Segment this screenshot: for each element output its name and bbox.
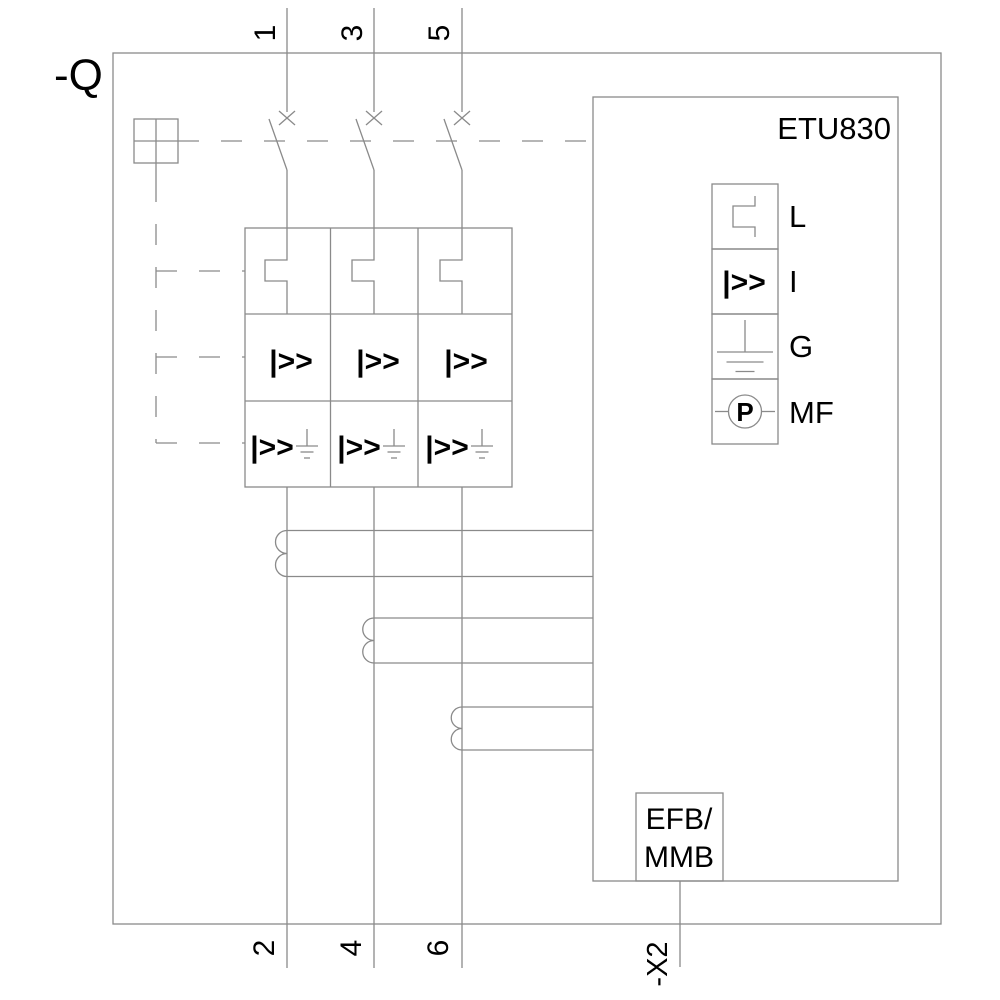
metering-function-icon: P (715, 395, 775, 428)
ground-fault-release-symbol: |>> (337, 431, 380, 464)
ground-fault-release-symbol: |>> (425, 431, 468, 464)
efb-mmb-box: EFB/ MMB (636, 793, 723, 881)
instantaneous-release-symbol: |>> (269, 345, 312, 378)
power-meter-symbol: P (736, 397, 753, 427)
legend-label-L: L (789, 199, 806, 234)
instantaneous-release-symbol: |>> (356, 345, 399, 378)
legend-label-MF: MF (789, 395, 834, 430)
long-time-release-step-icon (265, 170, 287, 314)
phase-2-conductor (352, 8, 382, 968)
protection-function-legend: |>> P L I G MF (712, 184, 834, 444)
release-grid: |>> |>> |>> |>> |>> |>> (245, 228, 512, 487)
terminal-label-bottom-4: 4 (335, 940, 368, 957)
ground-fault-release-symbol: |>> (250, 431, 293, 464)
efb-label-line1: EFB/ (646, 803, 713, 836)
instantaneous-protection-icon: |>> (722, 266, 765, 299)
earth-icon (296, 429, 318, 458)
x2-connector: -X2 (642, 881, 680, 987)
coil-loops-icon (363, 618, 374, 663)
coil-loops-icon (451, 707, 462, 750)
terminal-label-bottom-6: 6 (422, 940, 455, 957)
trip-unit-box (593, 97, 898, 881)
terminal-label-top-3: 3 (336, 25, 369, 42)
efb-label-line2: MMB (644, 841, 714, 874)
trip-unit-label: ETU830 (777, 111, 891, 146)
long-time-release-step-icon (440, 170, 462, 314)
ground-fault-protection-icon (717, 320, 773, 372)
current-sensor-phase-3 (451, 707, 593, 750)
long-time-protection-icon (733, 196, 755, 237)
phase-1-conductor (265, 8, 295, 968)
mechanism-square-icon (134, 119, 178, 181)
device-label: -Q (54, 51, 103, 100)
terminal-label-top-5: 5 (423, 25, 456, 42)
circuit-diagram-page: -Q ETU830 (0, 0, 1000, 1000)
current-sensor-phase-2 (363, 618, 593, 663)
device-outline-box (113, 53, 941, 924)
earth-icon (471, 429, 493, 458)
earth-icon (383, 429, 405, 458)
x2-connector-label: -X2 (642, 941, 674, 986)
breaker-schematic: -Q ETU830 (0, 0, 1000, 1000)
current-sensor-phase-1 (276, 531, 594, 577)
instantaneous-release-symbol: |>> (444, 345, 487, 378)
legend-label-G: G (789, 329, 813, 364)
coil-loops-icon (276, 531, 288, 577)
long-time-release-step-icon (352, 170, 374, 314)
phase-3-conductor (440, 8, 470, 968)
terminal-label-bottom-2: 2 (248, 940, 281, 957)
terminal-label-top-1: 1 (249, 25, 282, 42)
legend-label-I: I (789, 264, 798, 299)
